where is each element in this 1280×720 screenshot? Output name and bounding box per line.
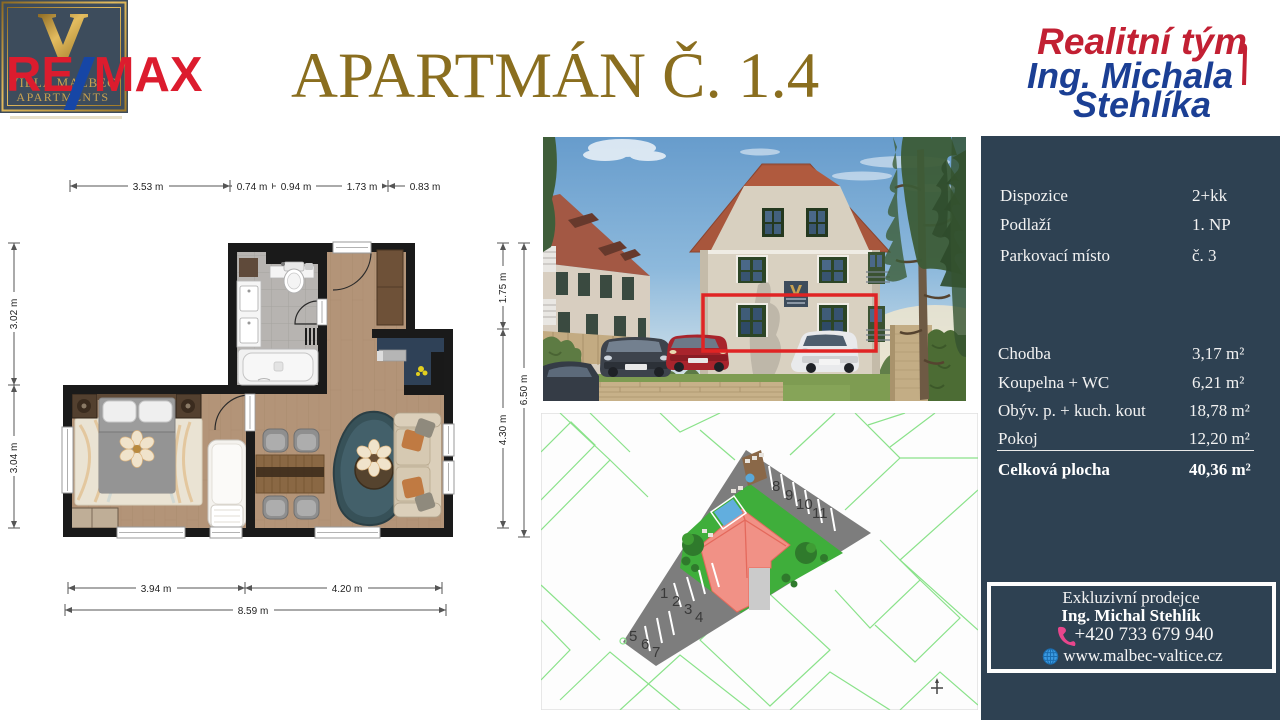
- svg-text:8.59 m: 8.59 m: [238, 606, 269, 617]
- svg-text:10: 10: [796, 496, 813, 513]
- svg-text:5: 5: [629, 628, 637, 645]
- svg-text:3.94 m: 3.94 m: [141, 584, 172, 595]
- svg-text:2: 2: [672, 593, 680, 610]
- svg-text:1: 1: [660, 585, 668, 602]
- svg-text:3.53 m: 3.53 m: [133, 182, 164, 193]
- svg-text:9: 9: [785, 487, 793, 504]
- svg-text:4.20 m: 4.20 m: [332, 584, 363, 595]
- svg-text:11: 11: [812, 505, 828, 522]
- svg-text:4.30 m: 4.30 m: [498, 415, 509, 446]
- svg-text:6: 6: [641, 636, 649, 653]
- svg-text:7: 7: [652, 644, 660, 661]
- svg-text:3.04 m: 3.04 m: [9, 443, 20, 474]
- svg-text:0.83 m: 0.83 m: [410, 182, 441, 193]
- svg-text:0.94 m: 0.94 m: [281, 182, 312, 193]
- svg-text:8: 8: [772, 478, 780, 495]
- svg-text:0.74 m: 0.74 m: [237, 182, 268, 193]
- svg-text:3: 3: [684, 601, 692, 618]
- svg-text:1.73 m: 1.73 m: [347, 182, 378, 193]
- svg-text:4: 4: [695, 609, 703, 626]
- svg-text:3.02 m: 3.02 m: [9, 299, 20, 330]
- svg-text:1.75 m: 1.75 m: [498, 273, 509, 304]
- svg-text:6.50 m: 6.50 m: [519, 375, 530, 406]
